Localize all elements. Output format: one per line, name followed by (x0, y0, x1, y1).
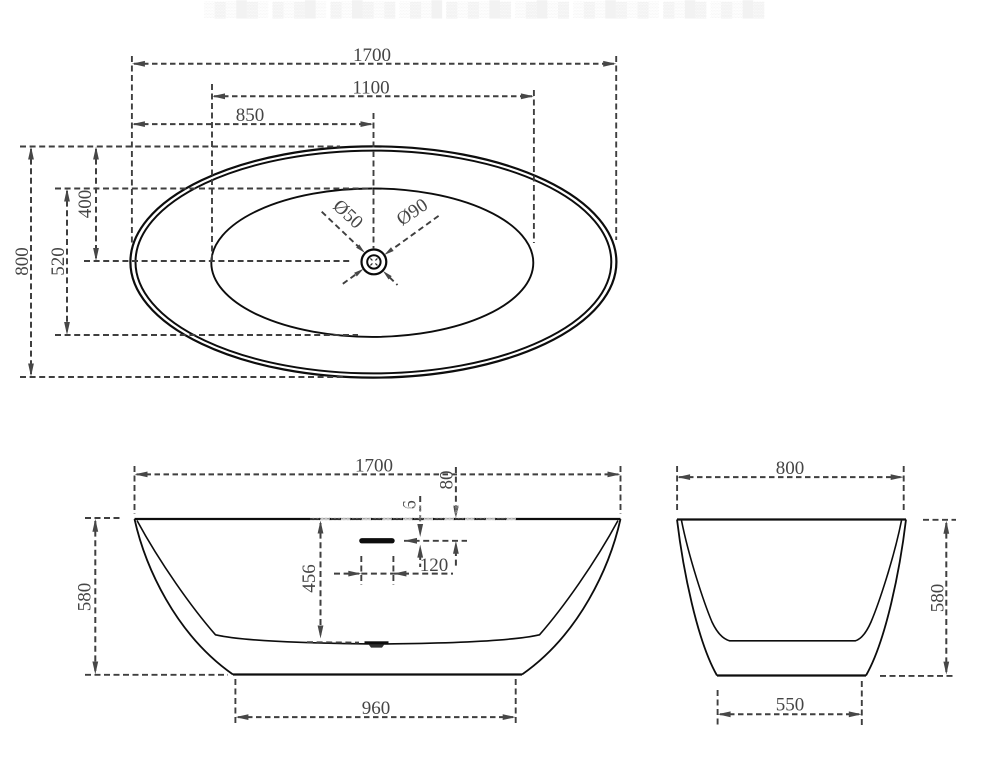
svg-text:580: 580 (75, 583, 96, 612)
svg-text:800: 800 (12, 247, 33, 276)
svg-text:1700: 1700 (355, 455, 393, 476)
svg-text:960: 960 (362, 698, 391, 719)
svg-text:400: 400 (75, 190, 96, 219)
svg-text:550: 550 (776, 694, 805, 715)
svg-text:Ø90: Ø90 (393, 195, 432, 231)
svg-text:800: 800 (776, 458, 805, 479)
svg-text:520: 520 (48, 247, 69, 276)
svg-text:80: 80 (437, 471, 458, 490)
svg-text:1100: 1100 (352, 77, 389, 98)
svg-text:580: 580 (927, 584, 948, 613)
svg-text:120: 120 (420, 555, 449, 576)
svg-text:456: 456 (299, 564, 320, 593)
svg-text:850: 850 (236, 105, 265, 126)
svg-text:1700: 1700 (353, 45, 391, 66)
svg-text:Ø50: Ø50 (329, 196, 367, 234)
